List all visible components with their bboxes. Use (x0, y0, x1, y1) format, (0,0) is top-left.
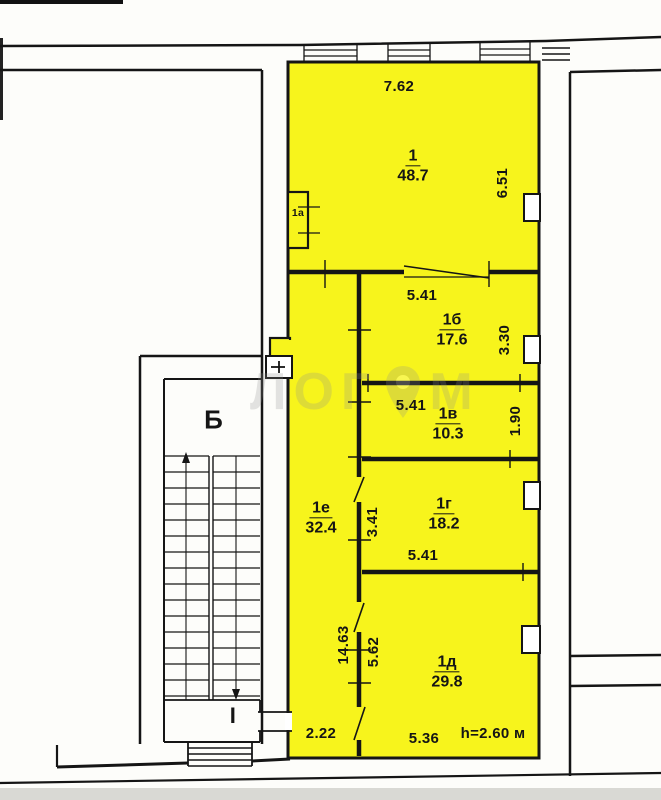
room-1a-label: 1а (292, 208, 304, 220)
dim-room1-depth: 6.51 (495, 168, 512, 198)
room-1d-label: 1д 29.8 (431, 652, 462, 691)
room-1v-label: 1в 10.3 (432, 404, 463, 443)
entrance-steps (188, 742, 252, 766)
room-1e-label: 1е 32.4 (305, 498, 336, 537)
room-1b-number: 1б (440, 310, 465, 330)
room-1v-area: 10.3 (432, 426, 463, 443)
ceiling-height-label: h=2.60 м (461, 726, 526, 743)
dim-room1d-width: 5.36 (409, 731, 439, 748)
dim-room1b-width: 5.41 (407, 288, 437, 305)
dim-room1b-depth: 3.30 (497, 325, 514, 355)
stair-treads (164, 456, 260, 696)
room-1g-number: 1г (433, 494, 455, 514)
room-1g-area: 18.2 (428, 516, 459, 533)
dim-top-width: 7.62 (384, 79, 414, 96)
dim-room1g-depth: 3.41 (365, 507, 382, 537)
floor-plan-drawing (0, 0, 661, 800)
dim-room1v-width: 5.41 (396, 398, 426, 415)
room-1v-number: 1в (436, 404, 461, 424)
landing-label: I (230, 704, 236, 728)
dim-room1d-depth: 5.62 (366, 637, 383, 667)
room-1e-area: 32.4 (305, 520, 336, 537)
room-1e-number: 1е (309, 498, 333, 518)
staircase (140, 356, 262, 766)
room-1-area: 48.7 (397, 168, 428, 185)
room-1d-area: 29.8 (431, 674, 462, 691)
dim-entry-width: 2.22 (306, 726, 336, 743)
room-1d-number: 1д (434, 652, 459, 672)
room-1g-label: 1г 18.2 (428, 494, 459, 533)
dim-room1v-depth: 1.90 (508, 406, 525, 436)
floor-plan-scan: ЛОГ М 7.62 1 48.7 6.51 1а 5.41 1б 17.6 3… (0, 0, 661, 800)
room-1b-label: 1б 17.6 (436, 310, 467, 349)
room-1b-area: 17.6 (436, 332, 467, 349)
arrow-up-icon (182, 452, 190, 463)
room-1-label: 1 48.7 (397, 146, 428, 185)
dim-room1g-width: 5.41 (408, 548, 438, 565)
dim-corridor-length: 14.63 (336, 625, 353, 664)
room-1-number: 1 (406, 146, 421, 166)
stairwell-label: Б (204, 406, 224, 435)
vent-shaft (266, 356, 292, 378)
arrow-down-icon (232, 689, 240, 700)
